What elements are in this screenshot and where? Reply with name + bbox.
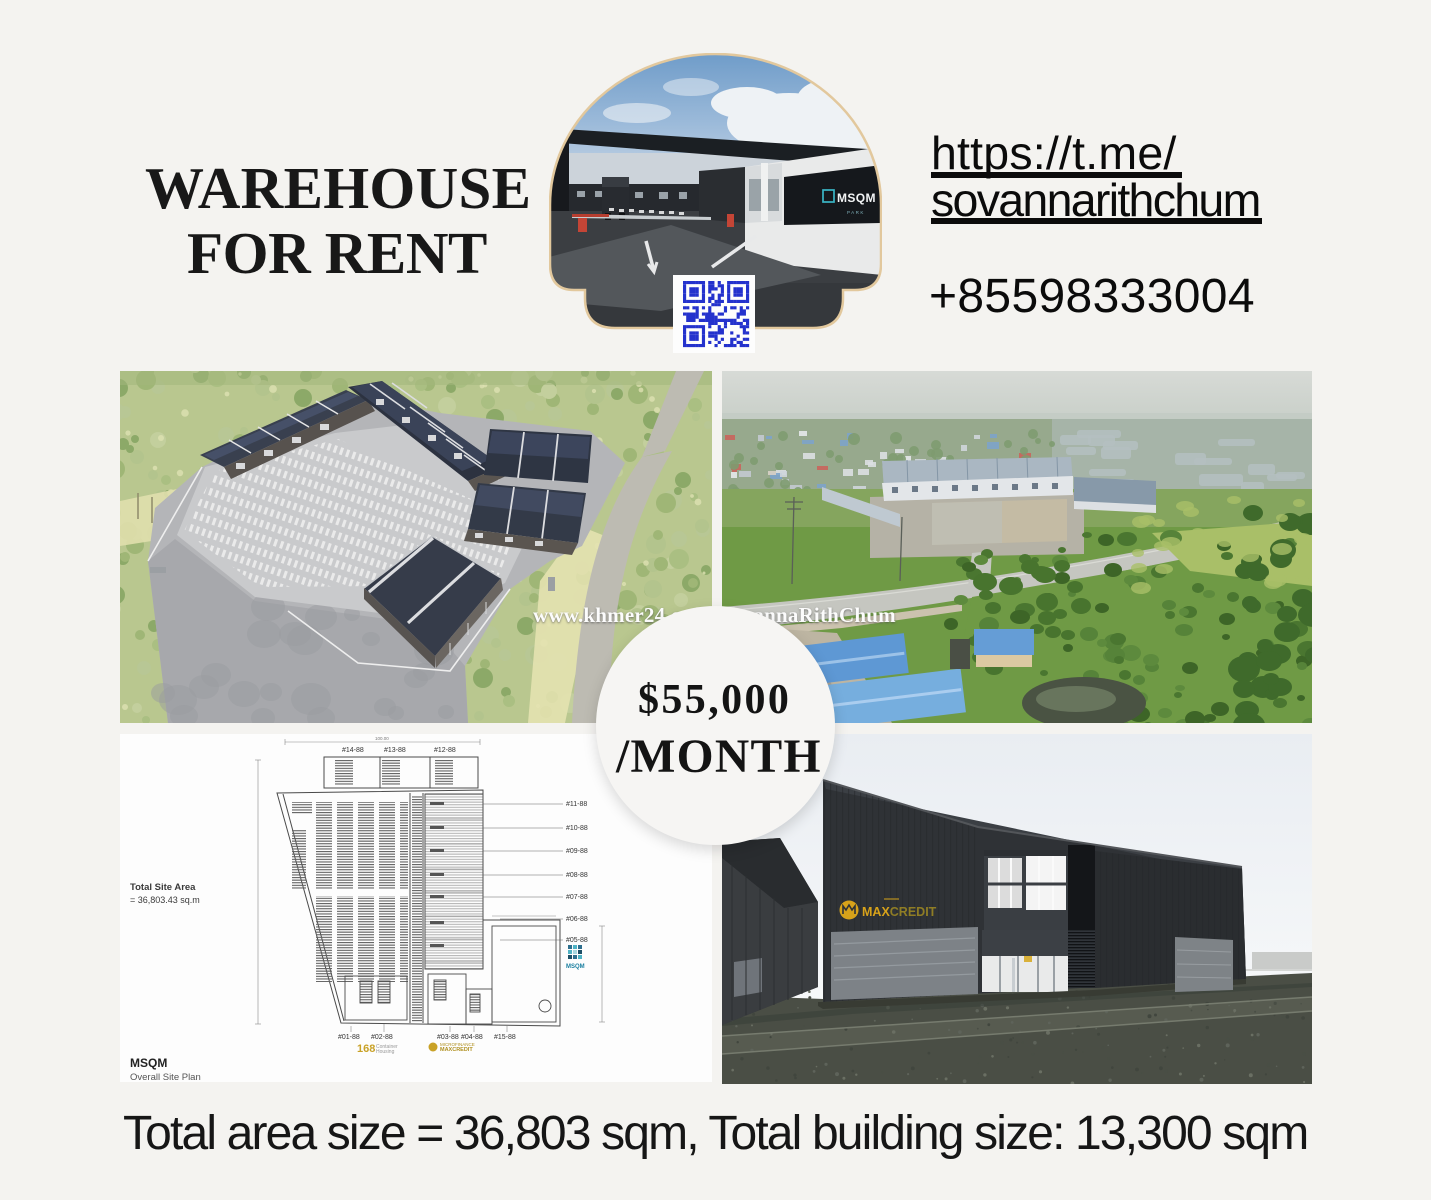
svg-text:#03-88: #03-88: [437, 1034, 459, 1041]
svg-text:#01-88: #01-88: [338, 1034, 360, 1041]
svg-text:= 36,803.43 sq.m: = 36,803.43 sq.m: [130, 895, 200, 905]
svg-text:MAXCREDIT: MAXCREDIT: [862, 905, 937, 919]
svg-text:MSQM: MSQM: [566, 964, 585, 970]
svg-text:MSQM: MSQM: [837, 191, 876, 205]
svg-text:Housing: Housing: [376, 1049, 395, 1055]
svg-text:#08-88: #08-88: [566, 872, 588, 879]
svg-text:Overall Site Plan: Overall Site Plan: [130, 1072, 201, 1082]
svg-text:Total Site Area: Total Site Area: [130, 882, 196, 893]
svg-text:#15-88: #15-88: [494, 1034, 516, 1041]
svg-text:168: 168: [357, 1043, 375, 1055]
svg-text:#12-88: #12-88: [434, 747, 456, 754]
svg-text:MAXCREDIT: MAXCREDIT: [440, 1047, 473, 1053]
svg-text:100.00: 100.00: [375, 736, 389, 741]
svg-text:#07-88: #07-88: [566, 894, 588, 901]
svg-text:#04-88: #04-88: [461, 1034, 483, 1041]
svg-text:#13-88: #13-88: [384, 747, 406, 754]
svg-text:#05-88: #05-88: [566, 937, 588, 944]
svg-text:#11-88: #11-88: [566, 801, 587, 808]
svg-text:#06-88: #06-88: [566, 916, 588, 923]
svg-text:#10-88: #10-88: [566, 825, 588, 832]
svg-text:PARK: PARK: [847, 210, 865, 215]
svg-text:#09-88: #09-88: [566, 848, 588, 855]
svg-text:#02-88: #02-88: [371, 1034, 393, 1041]
svg-text:#14-88: #14-88: [342, 747, 364, 754]
svg-text:MSQM: MSQM: [130, 1056, 167, 1070]
